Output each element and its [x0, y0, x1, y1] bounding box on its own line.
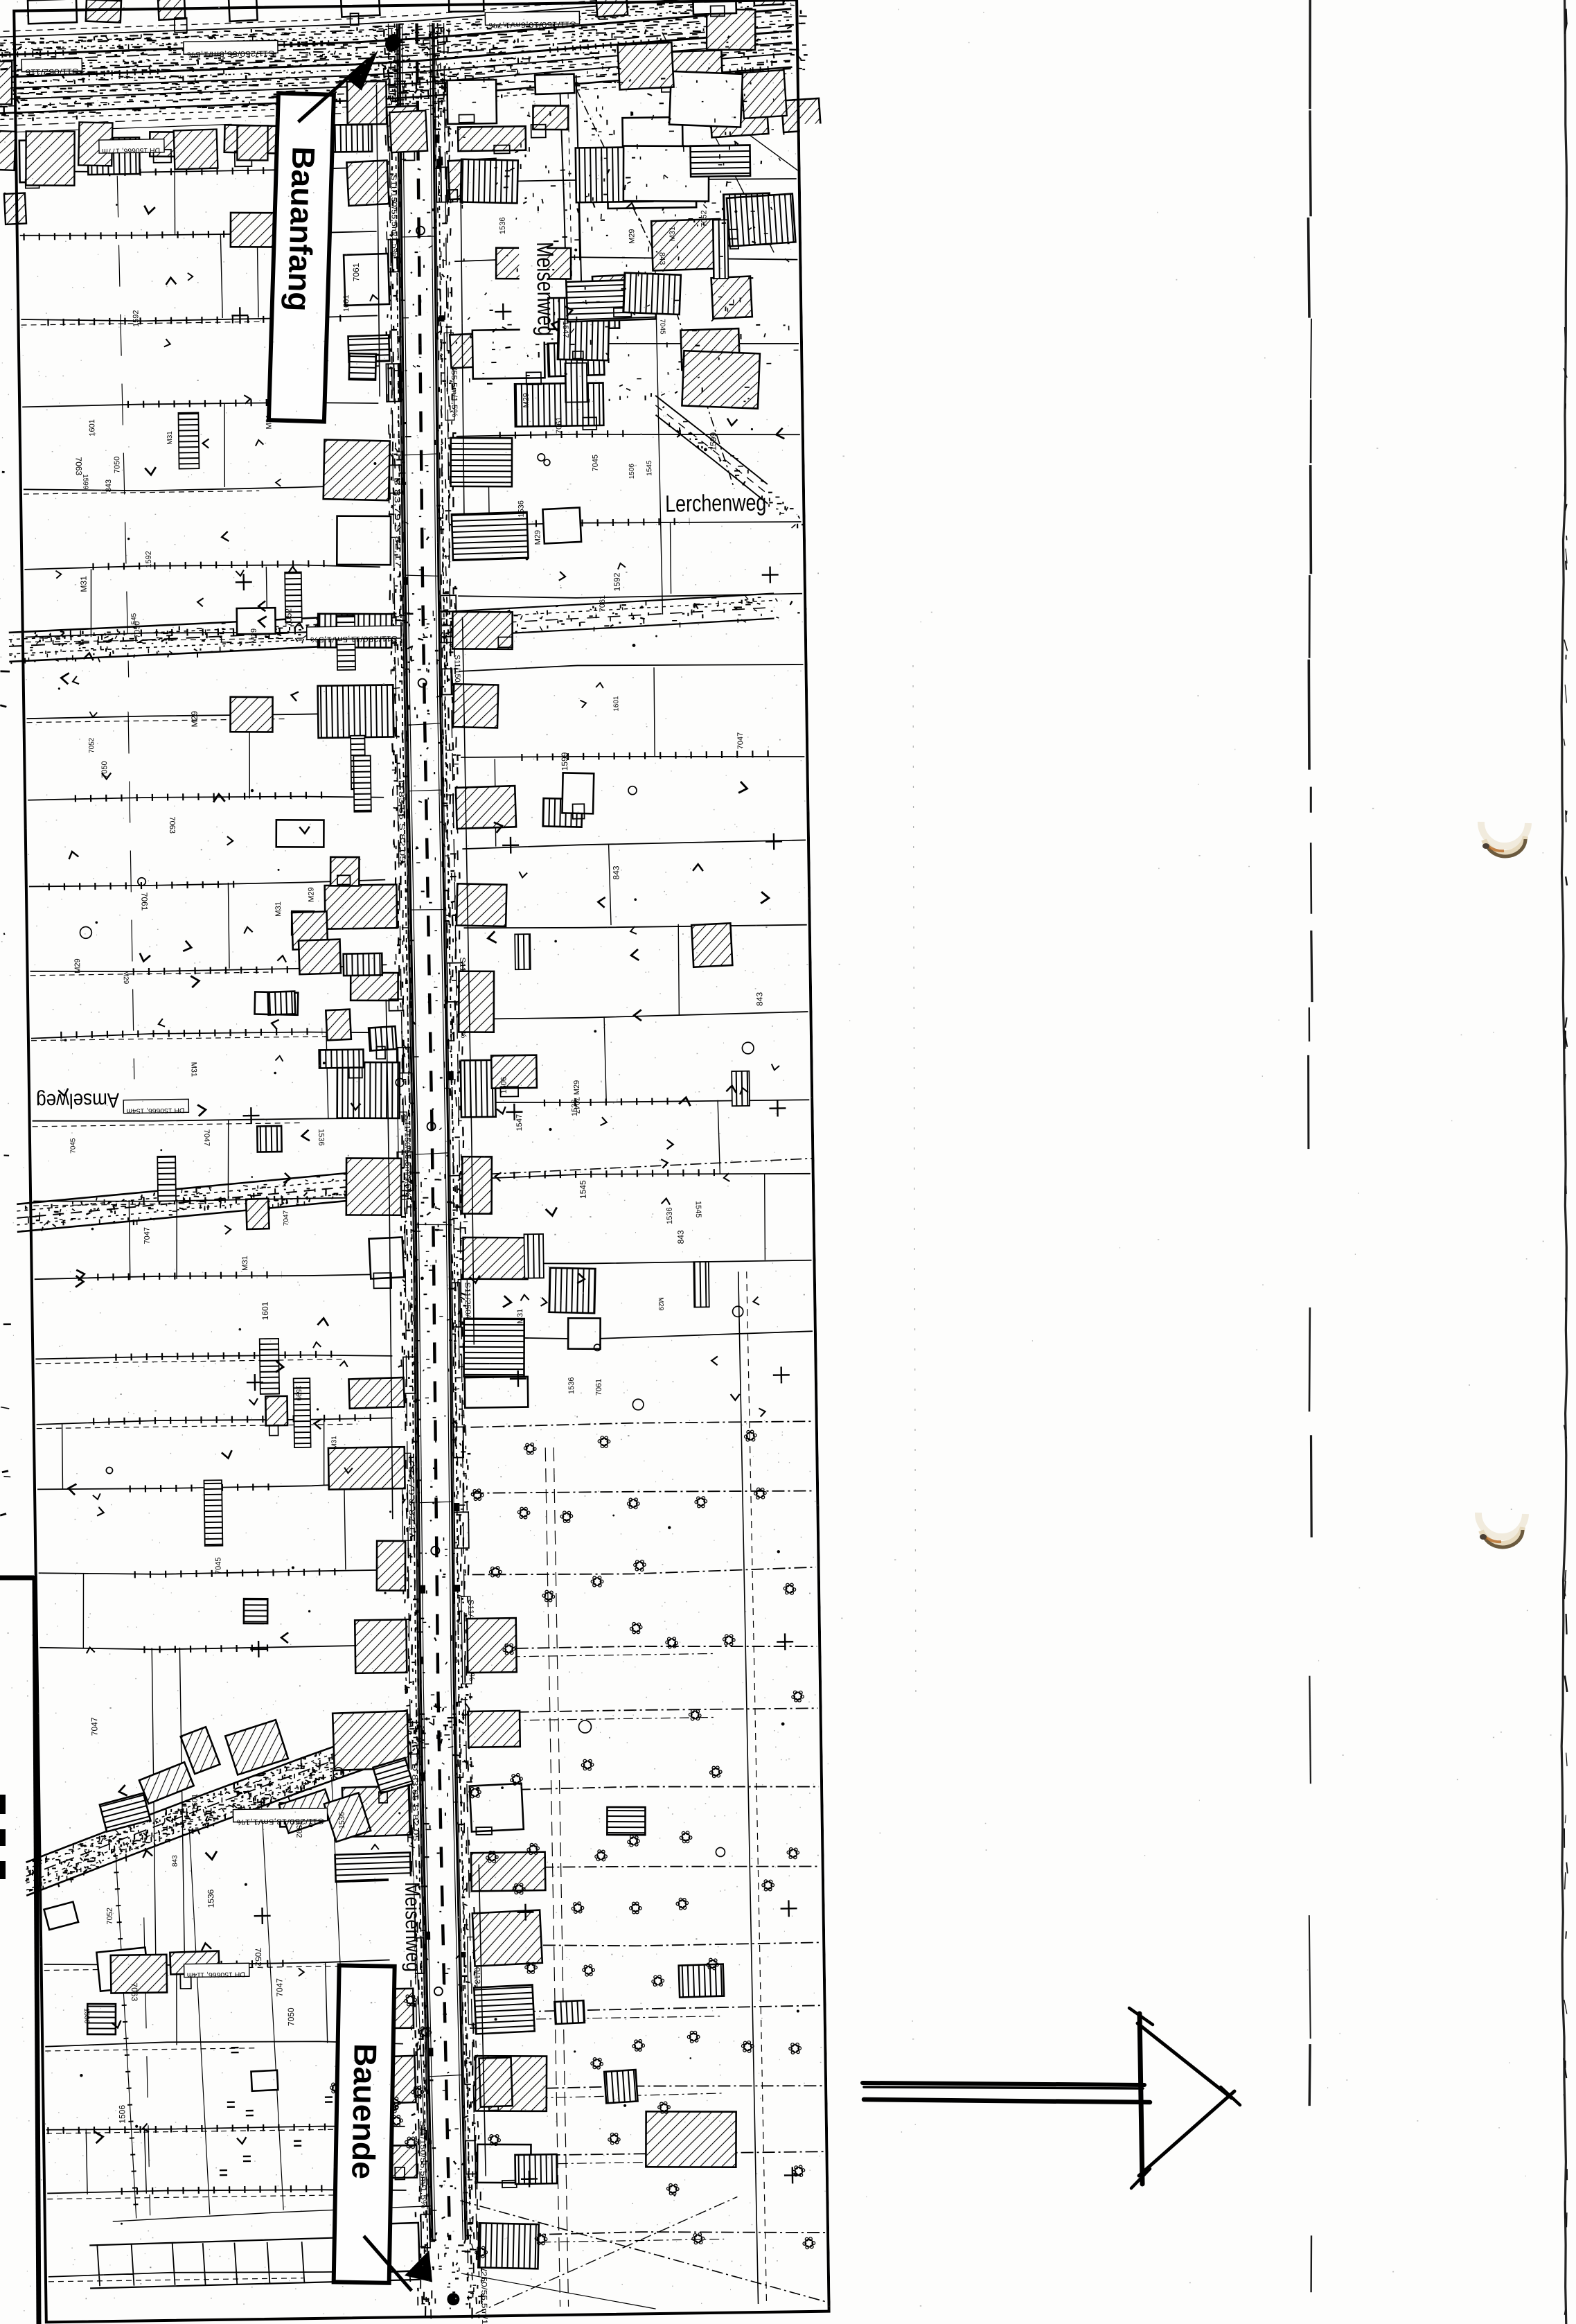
svg-text:843: 843	[675, 1230, 685, 1244]
svg-text:S11/150/10,6m/1,7%: S11/150/10,6m/1,7%	[488, 19, 576, 29]
svg-text:7047: 7047	[572, 1097, 581, 1114]
svg-text:7050: 7050	[133, 621, 141, 638]
svg-text:843: 843	[754, 992, 764, 1006]
svg-text:Amselweg: Amselweg	[36, 1089, 119, 1113]
svg-text:1506: 1506	[628, 464, 636, 479]
svg-text:1547: 1547	[561, 321, 569, 338]
svg-text:1506: 1506	[117, 2105, 127, 2124]
svg-text:M29: M29	[250, 628, 258, 644]
svg-text:7063: 7063	[130, 1982, 139, 2001]
svg-text:843: 843	[105, 479, 113, 493]
svg-text:M29: M29	[573, 1080, 581, 1095]
svg-text:Lerchenweg: Lerchenweg	[665, 490, 767, 518]
svg-text:7047: 7047	[202, 1129, 211, 1147]
svg-text:7052: 7052	[88, 737, 96, 753]
svg-text:1545: 1545	[694, 1201, 702, 1218]
svg-text:Meisenweg: Meisenweg	[400, 1882, 425, 1972]
svg-text:M29: M29	[657, 1297, 664, 1311]
svg-text:1536: 1536	[499, 217, 507, 234]
svg-text:M29: M29	[307, 887, 315, 902]
svg-text:1599: 1599	[560, 752, 569, 771]
svg-text:1592: 1592	[132, 310, 140, 327]
svg-text:S11/250/13,5m/1,1%: S11/250/13,5m/1,1%	[236, 1817, 324, 1826]
svg-text:M29: M29	[533, 530, 542, 545]
svg-text:7047: 7047	[143, 1227, 151, 1244]
svg-text:7047: 7047	[274, 1978, 284, 1997]
svg-text:1599: 1599	[81, 474, 89, 490]
svg-text:7052: 7052	[106, 1908, 114, 1925]
svg-text:1545: 1545	[578, 1180, 587, 1199]
svg-text:M29: M29	[628, 229, 636, 244]
svg-text:M31: M31	[189, 1062, 197, 1077]
svg-text:7061: 7061	[139, 892, 149, 911]
svg-text:1601: 1601	[612, 696, 620, 712]
svg-text:1599: 1599	[708, 432, 718, 450]
svg-text:1536: 1536	[567, 1377, 576, 1395]
svg-text:Bauende: Bauende	[345, 2043, 383, 2180]
svg-text:7050: 7050	[286, 2007, 296, 2026]
svg-text:1536: 1536	[82, 2008, 90, 2024]
svg-text:1601: 1601	[260, 1301, 270, 1320]
svg-text:7045: 7045	[658, 319, 666, 335]
svg-text:7052: 7052	[283, 608, 293, 627]
svg-text:M29: M29	[122, 971, 130, 985]
svg-text:1601: 1601	[191, 1794, 200, 1811]
svg-text:7063: 7063	[73, 457, 83, 475]
svg-text:1601: 1601	[342, 294, 351, 312]
svg-text:7061: 7061	[599, 595, 607, 613]
svg-text:7061: 7061	[555, 417, 563, 434]
svg-text:7047: 7047	[89, 1717, 99, 1736]
svg-text:843: 843	[611, 865, 621, 880]
svg-text:M31: M31	[516, 1309, 524, 1324]
svg-text:DH 150666, 154m: DH 150666, 154m	[126, 1106, 184, 1114]
svg-text:843: 843	[171, 1855, 179, 1867]
svg-text:7045: 7045	[214, 1557, 222, 1574]
svg-text:1592: 1592	[145, 551, 153, 568]
svg-text:843: 843	[657, 252, 666, 265]
svg-text:M29: M29	[190, 711, 200, 728]
svg-text:M31: M31	[241, 1256, 249, 1271]
svg-text:7063: 7063	[168, 816, 176, 834]
svg-text:1547: 1547	[515, 1114, 524, 1132]
svg-text:Meisenweg: Meisenweg	[531, 242, 559, 337]
svg-text:S11/250/55,5m/1,5%: S11/250/55,5m/1,5%	[187, 49, 274, 58]
svg-text:1536: 1536	[517, 500, 525, 518]
svg-text:1599: 1599	[294, 1385, 302, 1401]
svg-text:7061: 7061	[595, 1379, 603, 1396]
svg-text:M29: M29	[522, 393, 531, 408]
svg-text:1536: 1536	[338, 1812, 346, 1829]
svg-text:DH 150666, 177m: DH 150666, 177m	[102, 146, 160, 155]
svg-text:M31: M31	[330, 1436, 338, 1450]
svg-text:1536: 1536	[666, 1207, 674, 1224]
svg-text:7052: 7052	[254, 1948, 263, 1966]
svg-text:7047: 7047	[283, 1210, 290, 1226]
svg-text:M29: M29	[73, 958, 82, 974]
svg-text:7045: 7045	[592, 455, 600, 472]
svg-text:7061: 7061	[351, 263, 361, 281]
svg-text:7050: 7050	[113, 457, 121, 474]
svg-text:M31: M31	[79, 576, 89, 592]
svg-text:Bauanfang: Bauanfang	[281, 146, 322, 312]
svg-text:DH 150666, 114m: DH 150666, 114m	[187, 1970, 245, 1978]
svg-text:7047: 7047	[736, 732, 745, 750]
svg-text:1545: 1545	[646, 460, 653, 476]
svg-text:7050: 7050	[100, 761, 109, 778]
svg-text:1506: 1506	[499, 1077, 508, 1094]
svg-text:S11/250/11,5m/1,5%: S11/250/11,5m/1,5%	[310, 634, 398, 644]
svg-text:M31: M31	[669, 227, 677, 242]
svg-text:1592: 1592	[612, 572, 621, 591]
svg-text:1536: 1536	[206, 1889, 215, 1908]
svg-text:7045: 7045	[69, 1138, 77, 1154]
svg-text:S11/052/115: S11/052/115	[25, 67, 78, 76]
svg-text:M31: M31	[274, 901, 283, 917]
svg-text:1536: 1536	[317, 1129, 325, 1146]
svg-text:M31: M31	[166, 431, 174, 445]
